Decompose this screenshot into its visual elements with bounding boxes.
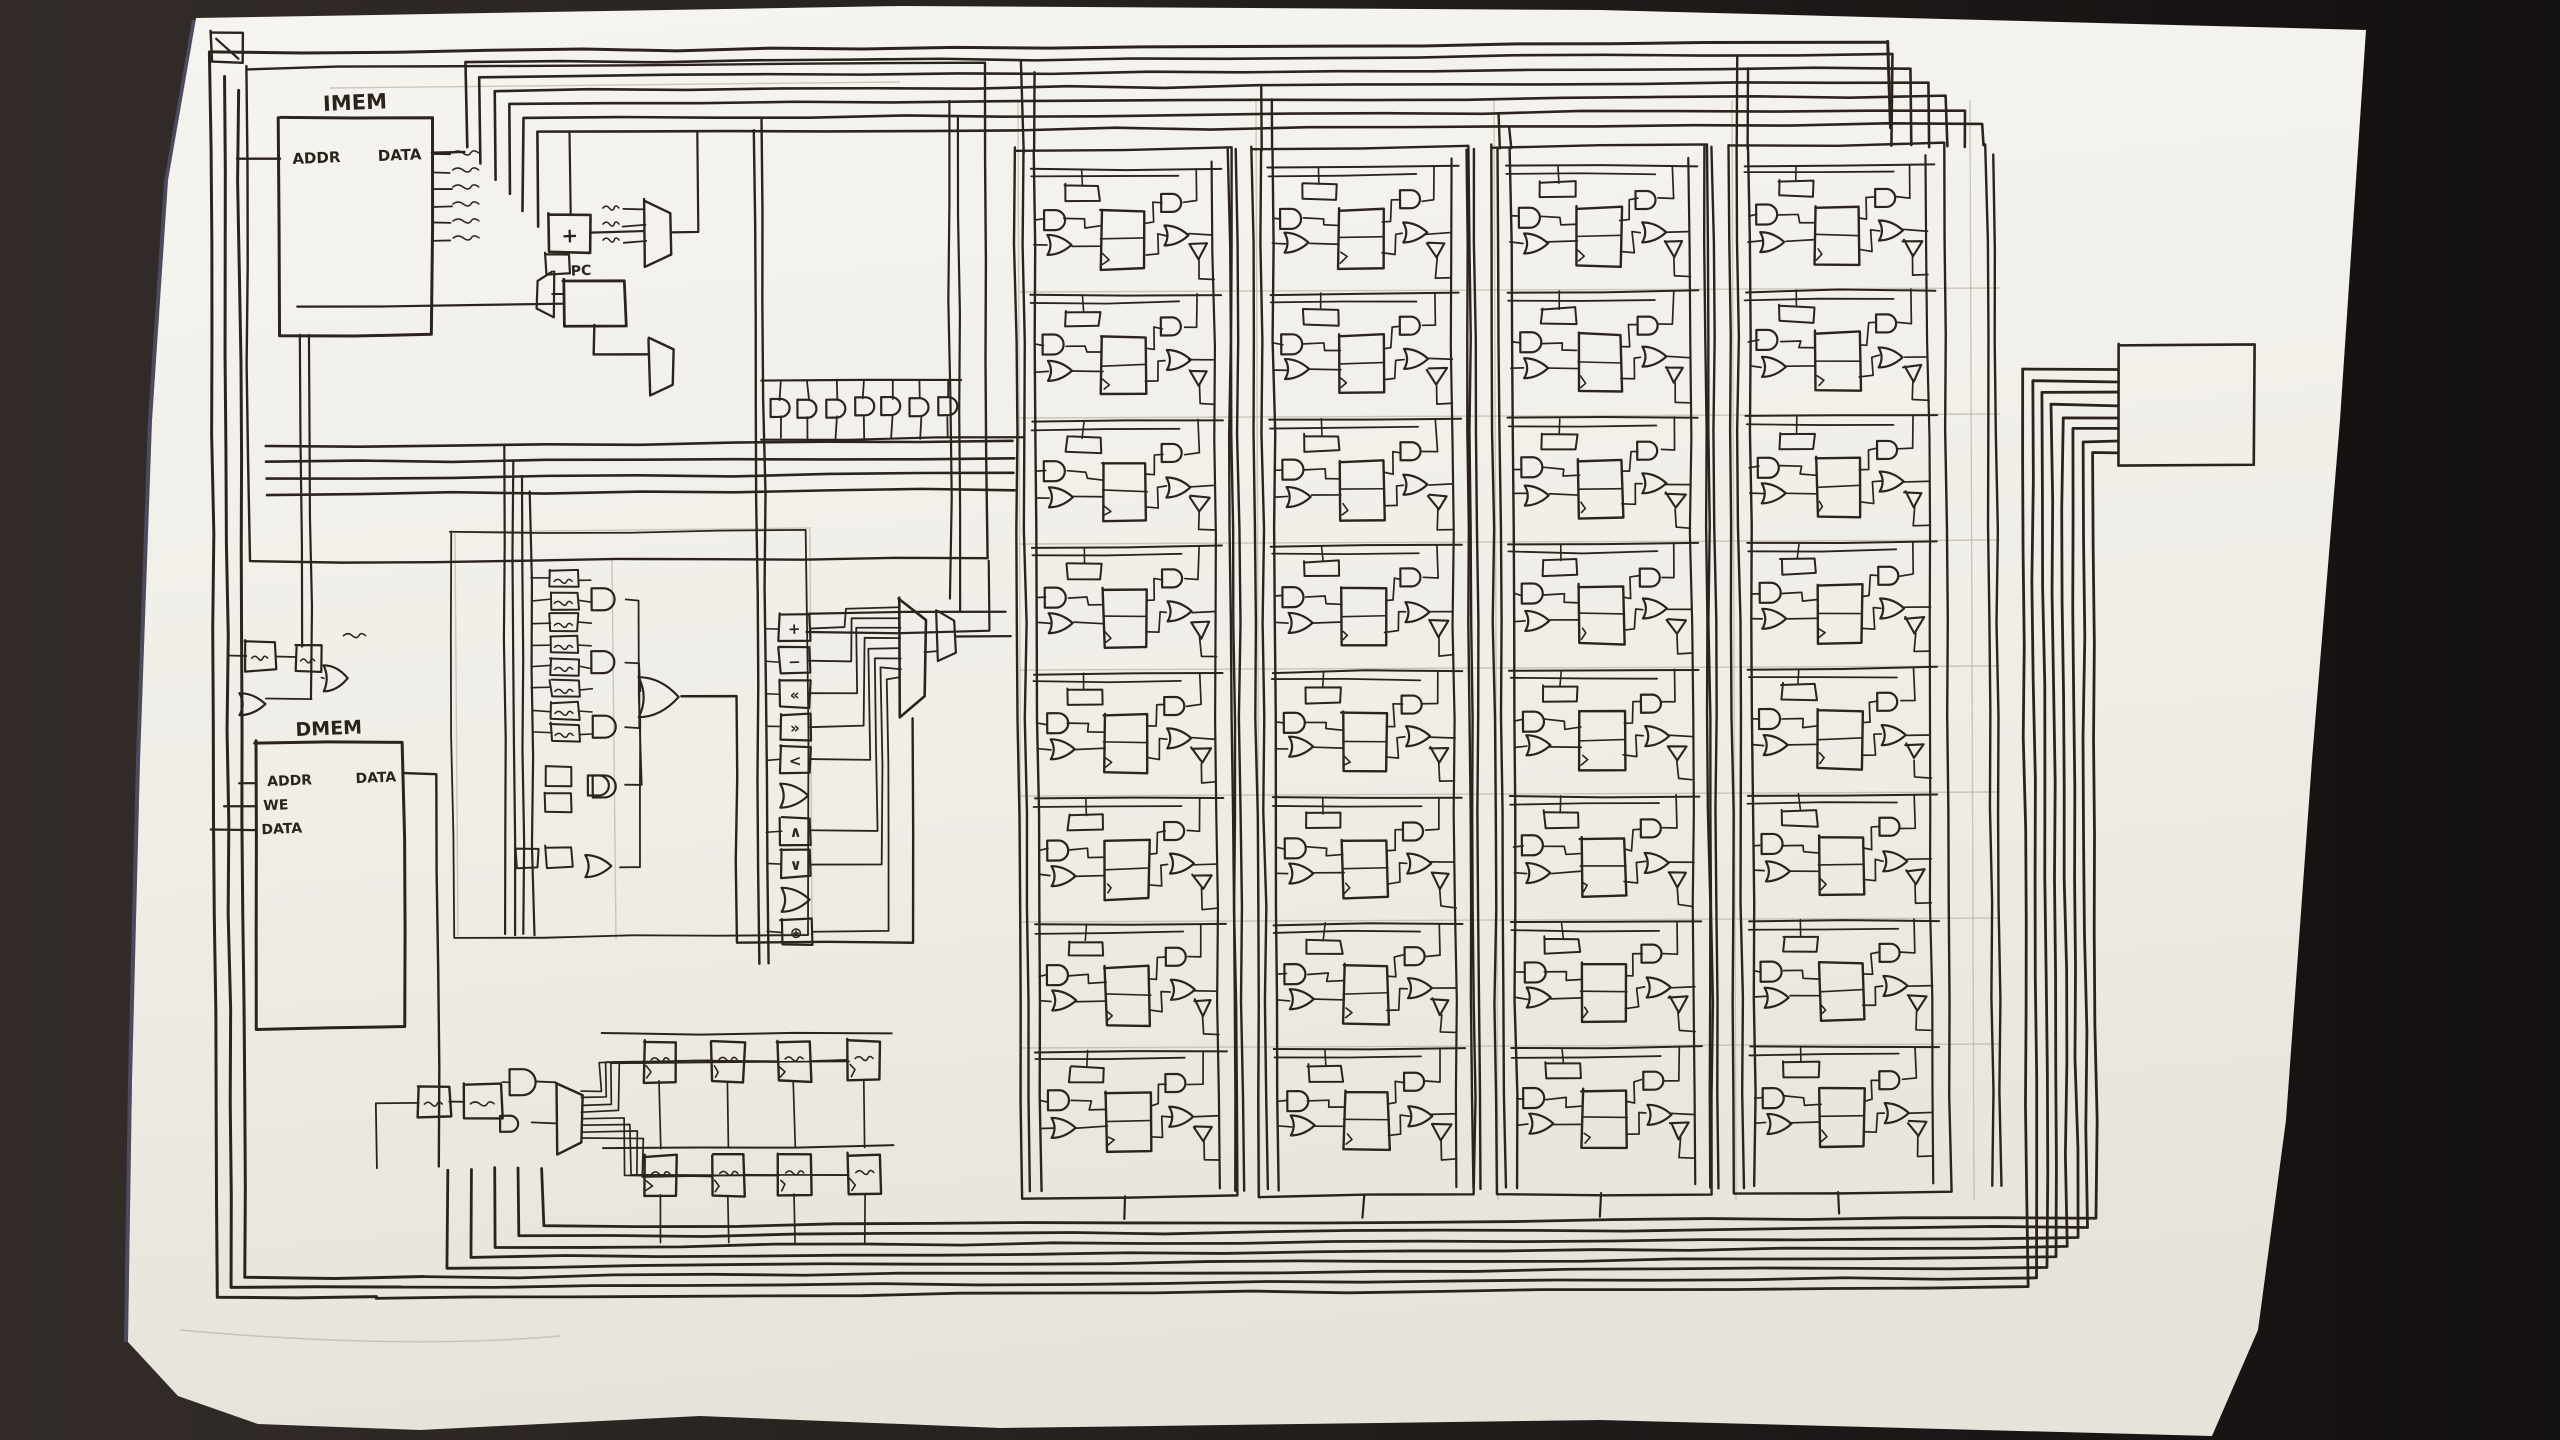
- dmem-title: DMEM: [295, 716, 362, 741]
- cell-in: [1276, 622, 1288, 623]
- pc-label: PC: [571, 263, 592, 280]
- latch-midline: [1821, 1116, 1865, 1117]
- gate-out: [532, 1122, 557, 1123]
- cell-in: [1277, 722, 1285, 723]
- cell-in: [1273, 218, 1279, 219]
- row-bus: [1031, 176, 1178, 177]
- cell-wire: [1789, 744, 1819, 745]
- alu-in-stub: [766, 661, 780, 662]
- cell-wire: [1194, 864, 1217, 865]
- bit-tap-wire: [433, 206, 452, 207]
- row-bus: [1034, 806, 1182, 807]
- opcode-out-stub: [578, 645, 591, 646]
- pill-tap: [1558, 167, 1559, 184]
- dmem-we-port-label: WE: [263, 797, 289, 814]
- cell-wire: [1551, 998, 1582, 999]
- latch-midline: [1344, 1119, 1390, 1120]
- pill-tap: [1325, 1051, 1326, 1066]
- cell-in: [1278, 1126, 1292, 1127]
- bus-column-drop: [1736, 56, 1738, 147]
- alu-in-stub: [766, 759, 779, 760]
- pill-tap: [1559, 419, 1560, 433]
- row-bus: [1744, 171, 1893, 172]
- dmem-data-out-port-label: DATA: [355, 769, 396, 787]
- latch-midline: [1343, 741, 1387, 742]
- cell-in: [1038, 622, 1051, 623]
- cell-in: [1512, 342, 1519, 343]
- alu-op-symbol: ⊕: [790, 924, 803, 942]
- gate-row-feed: [761, 379, 961, 381]
- pill-tap: [1086, 798, 1087, 815]
- bit-tap-wire: [432, 172, 450, 173]
- latch-midline: [1580, 991, 1626, 992]
- opcode-out-stub: [578, 711, 592, 712]
- cell-in: [1752, 744, 1764, 745]
- ff-chain-wire: [676, 1176, 712, 1177]
- opcode-in-stub: [531, 687, 551, 688]
- opcode-in-stub: [533, 732, 552, 733]
- cell-wire: [1789, 871, 1818, 872]
- ff-down-stub: [864, 1080, 865, 1147]
- cell-wire: [1192, 611, 1215, 612]
- row-bus: [1749, 929, 1898, 930]
- cell-wire: [1671, 987, 1695, 988]
- cell-in: [1035, 219, 1043, 220]
- opcode-in-stub: [532, 623, 550, 624]
- pill-tap: [1318, 167, 1319, 184]
- cell-in: [1754, 996, 1767, 997]
- bit-tap-wire: [433, 154, 451, 155]
- gate-in-stub: [837, 380, 838, 400]
- imem-addr-wire: [237, 158, 280, 159]
- alu-in-stub: [766, 831, 782, 832]
- cell-wire: [1071, 371, 1103, 372]
- alu-op-symbol: +: [788, 620, 801, 638]
- ff-to-bus-stub: [728, 1196, 729, 1243]
- pc-adder-plus: +: [561, 223, 579, 248]
- cell-wire: [1550, 747, 1582, 748]
- cell-wire: [1431, 1114, 1455, 1115]
- column-bottom-stub: [1600, 1193, 1602, 1217]
- ff-chain-wire: [745, 1175, 780, 1176]
- pill-tap: [1321, 419, 1322, 437]
- row-bus: [1511, 921, 1701, 923]
- bus-column-drop: [1499, 113, 1500, 148]
- adder-out-wire: [591, 231, 644, 233]
- column-bottom-stub: [1838, 1192, 1839, 1213]
- cell-in: [1517, 1099, 1524, 1100]
- cell-wire: [1429, 737, 1455, 738]
- latch-midline: [1340, 237, 1384, 238]
- row-bus: [1271, 301, 1417, 302]
- ff-to-bus-stub: [864, 1195, 865, 1243]
- photo-of-hand-drawn-cpu-schematic: IMEMADDRDATAPC++−«»<∧∨⊕DMEMADDRWEDATADAT…: [0, 0, 2560, 1440]
- latch-midline: [1818, 613, 1860, 614]
- pill-tap: [1087, 1050, 1088, 1067]
- latch-midline: [1343, 868, 1388, 869]
- bus-column-drop: [1747, 68, 1748, 148]
- alu-op-symbol: <: [789, 752, 802, 770]
- cell-wire: [1310, 243, 1338, 244]
- pill-tap: [1082, 170, 1083, 185]
- schematic-photo-canvas: IMEMADDRDATAPC++−«»<∧∨⊕DMEMADDRWEDATADAT…: [0, 0, 2560, 1440]
- alu-op-symbol: ∧: [789, 823, 802, 841]
- cell-in: [1277, 1000, 1290, 1001]
- dmem-data-in-wire: [211, 829, 256, 830]
- alu-op-symbol: «: [790, 686, 800, 704]
- cell-in: [1755, 1122, 1766, 1123]
- latch-midline: [1815, 361, 1860, 362]
- cell-wire: [1313, 747, 1343, 748]
- gate-in: [321, 678, 324, 679]
- cell-wire: [1549, 368, 1578, 369]
- cell-in: [1275, 595, 1282, 596]
- cell-wire: [1904, 481, 1930, 482]
- ff-chain-wire: [744, 1061, 778, 1062]
- opcode-out-stub: [580, 734, 592, 735]
- alu-op-symbol: ∨: [789, 856, 802, 874]
- latch-midline: [1103, 742, 1148, 743]
- ff-down-stub: [727, 1082, 728, 1146]
- dmem-data-in-port-label: DATA: [261, 821, 302, 839]
- cell-wire: [1073, 496, 1103, 497]
- gate-out: [535, 1081, 556, 1082]
- ff-to-bus-stub: [794, 1194, 795, 1242]
- cell-wire: [1074, 876, 1105, 877]
- latch-midline: [1578, 235, 1622, 236]
- latch-midline: [1584, 1117, 1628, 1118]
- ff-left-wire: [228, 655, 247, 656]
- cell-wire: [1786, 493, 1816, 494]
- mux-chain-wire: [924, 651, 937, 652]
- cell-wire: [1547, 241, 1577, 242]
- latch-midline: [1578, 613, 1624, 614]
- row-bus: [1509, 670, 1699, 672]
- cell-wire: [1666, 232, 1688, 233]
- adder-top-wire: [569, 131, 570, 213]
- cell-in: [1750, 493, 1764, 494]
- cell-in: [1276, 496, 1288, 497]
- ff-chain-wire: [812, 1175, 848, 1176]
- latch-midline: [1103, 616, 1147, 617]
- cell-in: [1272, 243, 1285, 244]
- cell-in: [1514, 873, 1526, 874]
- latch-midline: [1100, 238, 1144, 239]
- alu-op-symbol: −: [788, 653, 801, 671]
- cell-wire: [1909, 1112, 1932, 1113]
- latch-midline: [1342, 616, 1385, 617]
- imem-data-port-label: DATA: [377, 145, 422, 165]
- cell-in: [1754, 870, 1764, 871]
- imem-data-wire: [432, 152, 465, 153]
- cell-wire: [1312, 622, 1342, 623]
- cell-wire: [1194, 1116, 1218, 1117]
- column-bottom-stub: [1124, 1196, 1125, 1219]
- latch-midline: [1818, 864, 1863, 865]
- ff-chain-wire: [277, 656, 296, 657]
- alu-op-symbol: »: [790, 719, 800, 737]
- alu-in-stub: [767, 863, 781, 864]
- latch-midline: [1106, 1120, 1150, 1121]
- gate-left-wire: [266, 698, 312, 699]
- cell-in: [1755, 1098, 1763, 1099]
- row-bus: [1745, 415, 1937, 417]
- cell-wire: [1790, 1122, 1820, 1123]
- pill-tap: [1798, 670, 1799, 685]
- cell-in: [1279, 1100, 1287, 1101]
- cell-in: [1514, 621, 1525, 622]
- bus-column-drop: [1034, 72, 1035, 151]
- cell-wire: [1193, 991, 1217, 992]
- cell-wire: [1429, 358, 1453, 359]
- imem-title: IMEM: [323, 89, 388, 116]
- cell-wire: [1313, 999, 1345, 1000]
- cell-in: [1040, 1001, 1051, 1002]
- cell-wire: [1907, 986, 1933, 987]
- cell-in: [1035, 471, 1045, 472]
- cell-wire: [1788, 618, 1818, 619]
- dmem-addr-port-label: ADDR: [267, 772, 313, 790]
- cell-wire: [1076, 1001, 1106, 1002]
- mux-input-stub: [623, 209, 644, 210]
- cell-in: [1514, 846, 1524, 847]
- pill-tap: [1560, 796, 1561, 813]
- cell-in: [1035, 371, 1049, 372]
- alu-in-stub: [766, 694, 779, 695]
- imem-addr-port-label: ADDR: [292, 148, 341, 168]
- cell-wire: [1309, 369, 1341, 370]
- pill-tap: [1323, 671, 1324, 687]
- bit-tap-wire: [434, 222, 451, 223]
